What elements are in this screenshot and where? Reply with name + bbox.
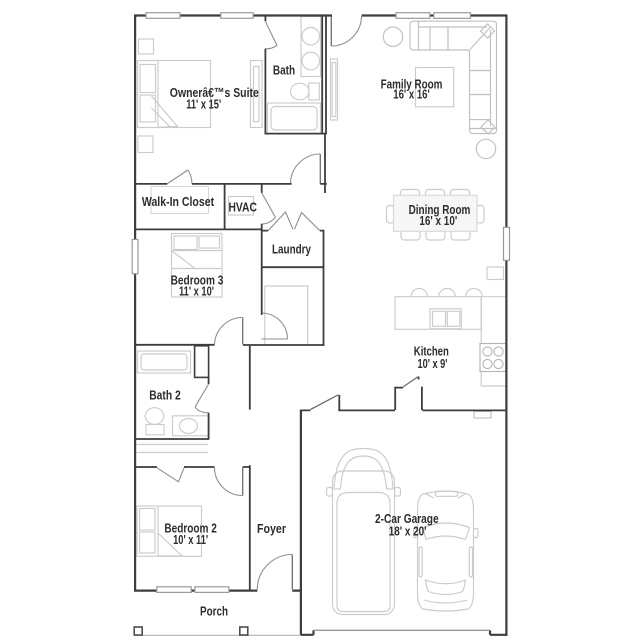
svg-text:Porch: Porch [200,604,228,619]
svg-text:18' x 20': 18' x 20' [389,524,427,538]
svg-text:Bath 2: Bath 2 [149,387,181,402]
svg-text:Foyer: Foyer [257,521,286,536]
svg-text:HVAC: HVAC [229,200,258,215]
svg-text:16' x 16': 16' x 16' [393,88,430,102]
svg-text:11' x 10': 11' x 10' [179,285,214,299]
svg-text:10' x 11': 10' x 11' [173,533,208,547]
svg-text:10' x 9': 10' x 9' [418,357,448,371]
svg-text:Walk-In Closet: Walk-In Closet [142,194,215,209]
svg-text:16' x 10': 16' x 10' [419,214,457,228]
svg-text:Bath: Bath [273,63,295,78]
svg-text:Laundry: Laundry [272,242,311,257]
svg-text:Kitchen: Kitchen [414,343,449,358]
svg-text:11' x 15': 11' x 15' [186,97,221,111]
